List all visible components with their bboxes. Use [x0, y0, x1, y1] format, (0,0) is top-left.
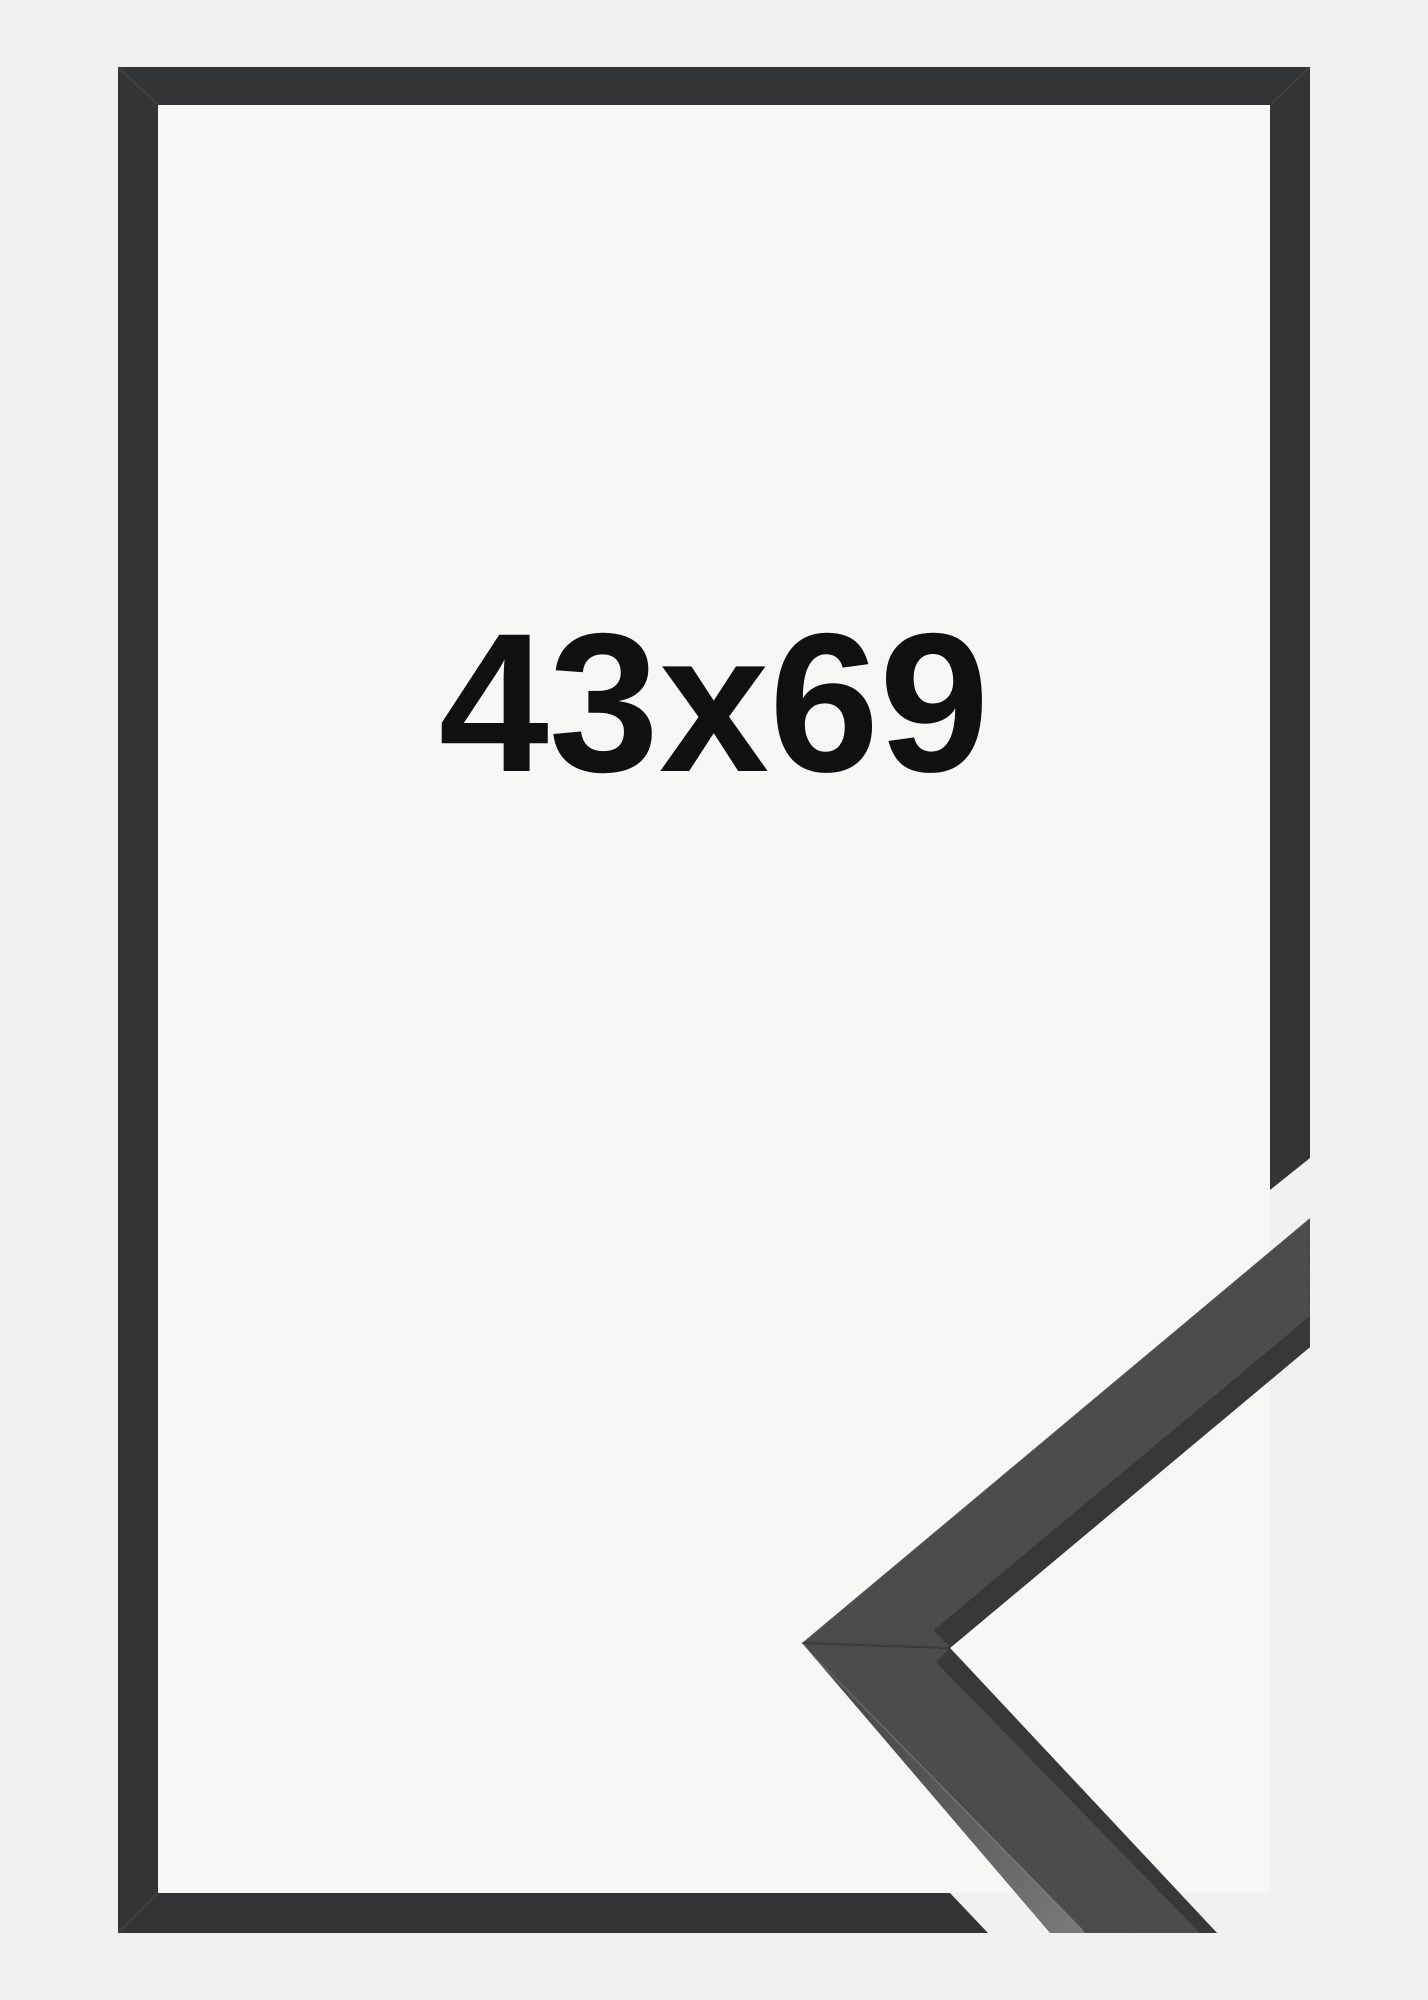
- frame-interior: [158, 105, 1270, 1893]
- frame-product-illustration: 43x69: [0, 0, 1428, 2000]
- size-label: 43x69: [439, 592, 990, 813]
- frame-product-image: 43x69: [0, 0, 1428, 2000]
